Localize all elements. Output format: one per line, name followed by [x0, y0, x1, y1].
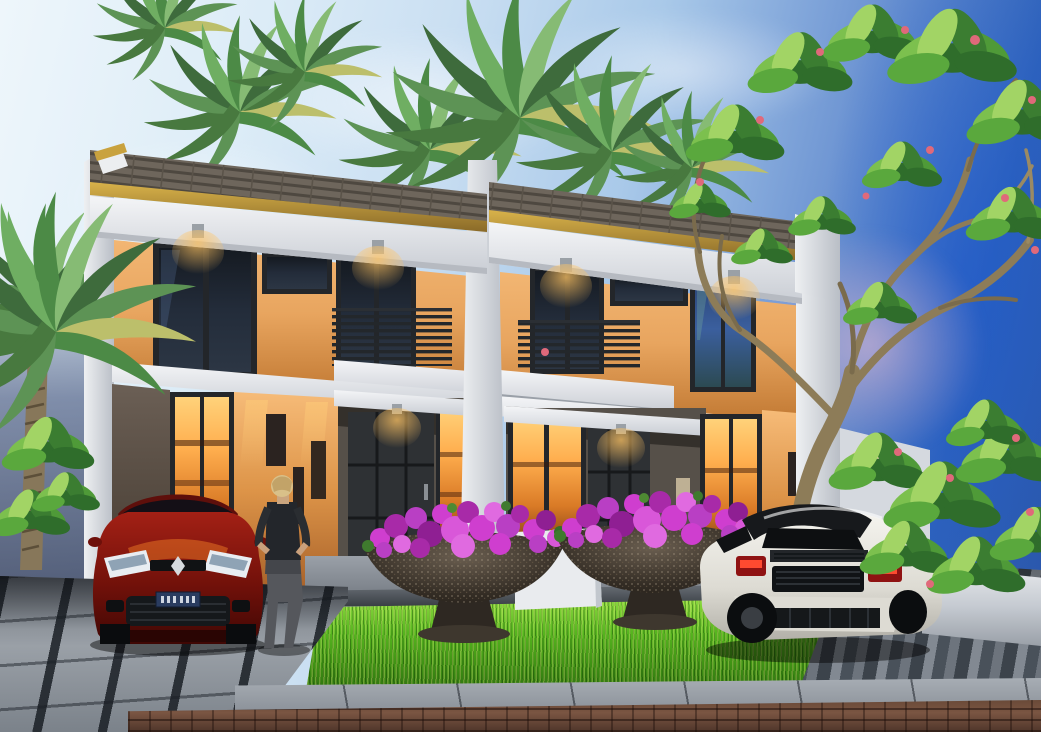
shaded-left-background — [0, 260, 100, 605]
rendering-canvas — [0, 0, 1041, 732]
sunset-glow — [755, 230, 985, 460]
cloud — [520, 10, 840, 130]
cloud — [60, 140, 340, 260]
grass-bed — [306, 598, 862, 690]
